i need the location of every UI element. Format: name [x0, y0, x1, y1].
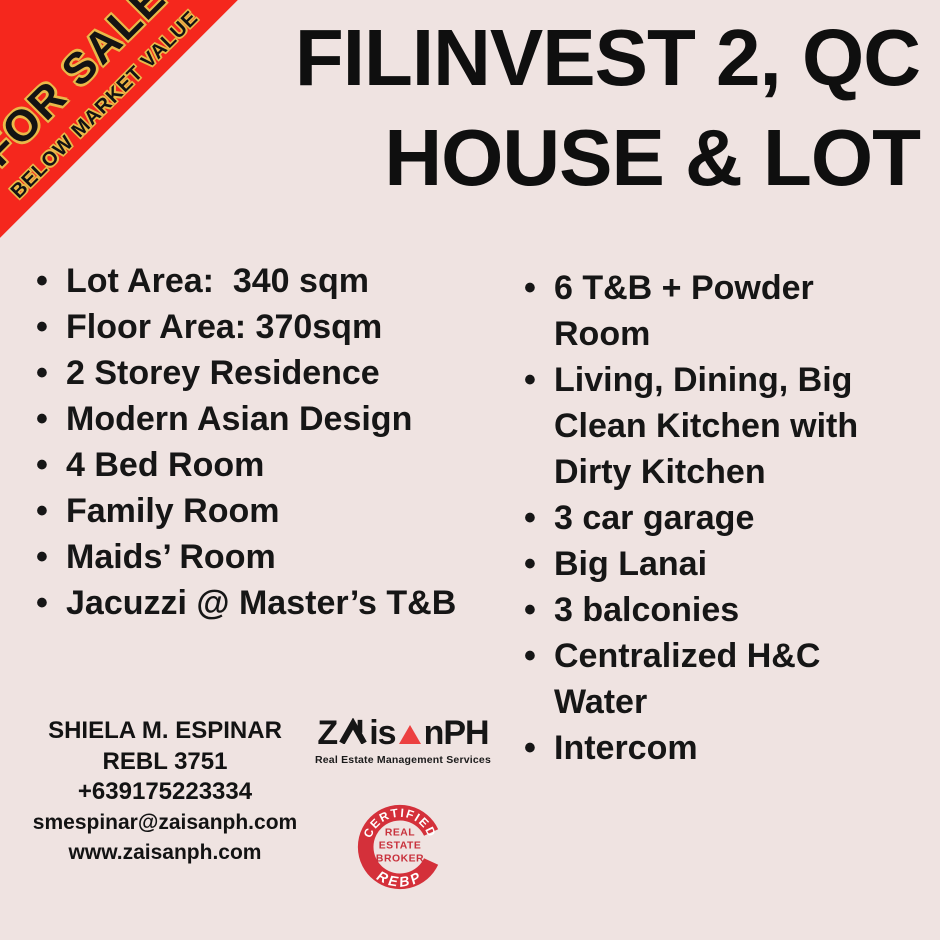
bullet-icon: •: [36, 396, 48, 442]
agent-license: REBL 3751: [10, 747, 320, 778]
bullet-icon: •: [36, 304, 48, 350]
feature-text: Jacuzzi @ Master’s T&B: [66, 584, 456, 622]
feature-text: Intercom: [554, 729, 698, 767]
feature-item: •Maids’ Room: [35, 534, 510, 580]
agent-email: smespinar@zaisanph.com: [10, 808, 320, 839]
feature-text: Family Room: [66, 492, 279, 530]
feature-item: •Centralized H&C Water: [523, 633, 940, 725]
badge-center-line: ESTATE: [379, 841, 422, 852]
feature-text: Maids’ Room: [66, 538, 276, 576]
badge-center-line: REAL: [385, 828, 415, 839]
zaisanph-logo: Z is nPH Real Estate Management Services: [310, 716, 496, 766]
logo-letters-nph: nPH: [424, 716, 489, 750]
feature-item: •Jacuzzi @ Master’s T&B: [35, 580, 510, 626]
feature-text: Big Lanai: [554, 545, 707, 583]
bullet-icon: •: [524, 265, 536, 311]
contact-block: SHIELA M. ESPINAR REBL 3751 +63917522333…: [10, 716, 320, 869]
bullet-icon: •: [36, 580, 48, 626]
badge-bottom-text: REBP: [374, 867, 425, 890]
feature-item: •Modern Asian Design: [35, 396, 510, 442]
feature-item: •6 T&B + Powder Room: [523, 265, 940, 357]
feature-text: Living, Dining, Big Clean Kitchen with D…: [554, 361, 858, 491]
feature-item: •Lot Area: 340 sqm: [35, 258, 510, 304]
agent-name: SHIELA M. ESPINAR: [10, 716, 320, 747]
agent-website: www.zaisanph.com: [10, 838, 320, 869]
feature-text: Centralized H&C Water: [554, 637, 820, 721]
page-title: FILINVEST 2, QC HOUSE & LOT: [295, 8, 920, 208]
logo-wordmark: Z is nPH: [310, 716, 496, 750]
feature-item: •2 Storey Residence: [35, 350, 510, 396]
feature-list-left: •Lot Area: 340 sqm •Floor Area: 370sqm •…: [35, 258, 510, 626]
red-triangle-icon: [399, 725, 421, 744]
bullet-icon: •: [36, 534, 48, 580]
feature-list-right: •6 T&B + Powder Room •Living, Dining, Bi…: [523, 265, 940, 771]
logo-letters-is: is: [369, 716, 395, 750]
certified-broker-badge: CERTIFIED REAL ESTATE BROKER REBP: [348, 795, 452, 899]
feature-text: 3 car garage: [554, 499, 754, 537]
feature-text: Modern Asian Design: [66, 400, 412, 438]
feature-item: •3 balconies: [523, 587, 940, 633]
title-line-1: FILINVEST 2, QC: [295, 8, 920, 108]
feature-item: •Family Room: [35, 488, 510, 534]
feature-text: Lot Area: 340 sqm: [66, 262, 369, 300]
feature-item: •Big Lanai: [523, 541, 940, 587]
bullet-icon: •: [524, 495, 536, 541]
badge-center-line: BROKER: [376, 854, 424, 865]
ribbon-primary-text: FOR SALE: [0, 0, 176, 176]
bullet-icon: •: [36, 488, 48, 534]
feature-item: •3 car garage: [523, 495, 940, 541]
bullet-icon: •: [36, 442, 48, 488]
bullet-icon: •: [36, 258, 48, 304]
feature-text: Floor Area: 370sqm: [66, 308, 382, 346]
bullet-icon: •: [524, 357, 536, 403]
flyer-page: FOR SALE BELOW MARKET VALUE FILINVEST 2,…: [0, 0, 940, 940]
agent-phone: +639175223334: [10, 777, 320, 808]
bullet-icon: •: [524, 541, 536, 587]
feature-item: •Floor Area: 370sqm: [35, 304, 510, 350]
house-roof-icon: [339, 718, 367, 744]
title-line-2: HOUSE & LOT: [295, 108, 920, 208]
logo-tagline: Real Estate Management Services: [310, 754, 496, 766]
feature-text: 2 Storey Residence: [66, 354, 380, 392]
bullet-icon: •: [36, 350, 48, 396]
feature-item: •Living, Dining, Big Clean Kitchen with …: [523, 357, 940, 495]
feature-text: 3 balconies: [554, 591, 739, 629]
feature-item: •Intercom: [523, 725, 940, 771]
bullet-icon: •: [524, 587, 536, 633]
feature-item: •4 Bed Room: [35, 442, 510, 488]
feature-text: 6 T&B + Powder Room: [554, 269, 814, 353]
feature-text: 4 Bed Room: [66, 446, 264, 484]
logo-letter-z: Z: [317, 716, 337, 750]
bullet-icon: •: [524, 633, 536, 679]
bullet-icon: •: [524, 725, 536, 771]
